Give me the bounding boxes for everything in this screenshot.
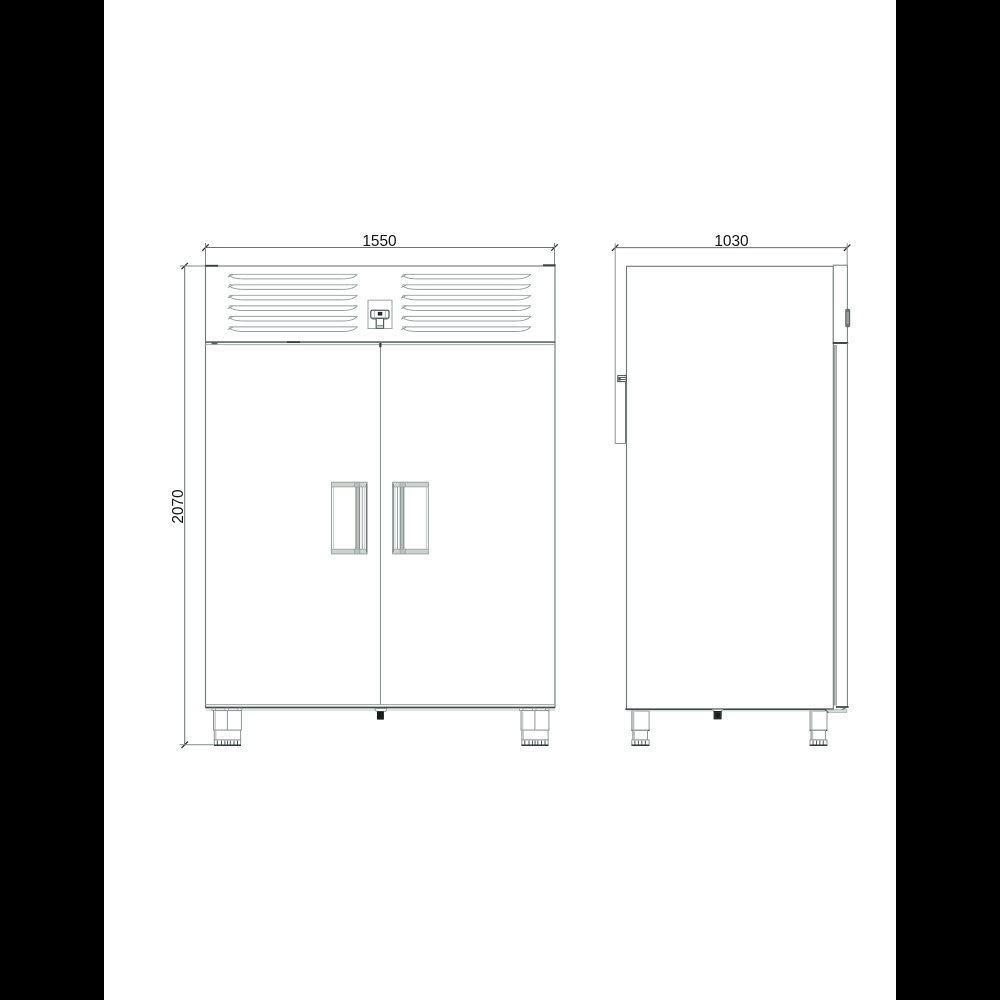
svg-text:1550: 1550 — [362, 233, 396, 250]
svg-text:2070: 2070 — [170, 489, 187, 523]
svg-text:1030: 1030 — [714, 233, 748, 250]
